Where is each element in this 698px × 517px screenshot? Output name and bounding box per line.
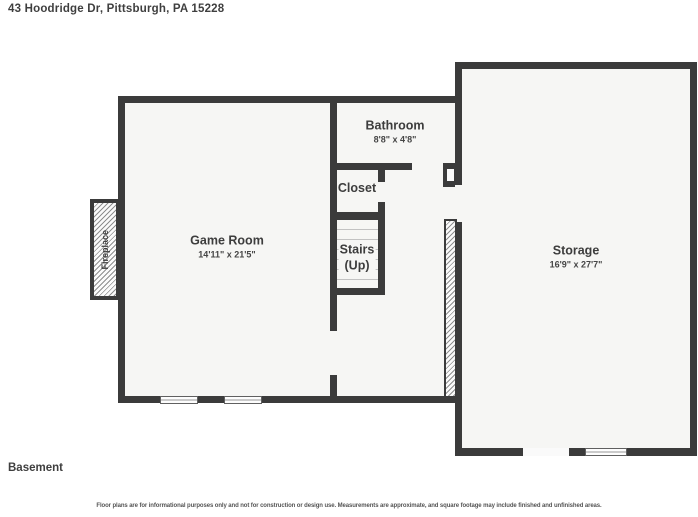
closet-name: Closet xyxy=(338,181,376,197)
hatched-wall-section xyxy=(444,219,457,398)
floor-plan: Fireplace Game Room 14'11" x 21'5" Bathr… xyxy=(0,0,698,517)
game-room-window-2 xyxy=(224,396,262,404)
fireplace-label: Fireplace xyxy=(100,230,110,270)
storage-label: Storage 16'9" x 27'7" xyxy=(550,244,603,271)
wall-closet-bottom xyxy=(330,212,385,220)
disclaimer-text: Floor plans are for informational purpos… xyxy=(0,503,698,509)
stairs-label: Stairs (Up) xyxy=(339,242,376,273)
game-room-dimensions: 14'11" x 21'5" xyxy=(198,249,255,260)
storage-window xyxy=(585,448,627,456)
wall-storage-bottom xyxy=(455,448,697,456)
closet-label: Closet xyxy=(338,181,376,197)
wall-bathroom-bottom xyxy=(330,163,412,170)
fireplace: Fireplace xyxy=(90,199,120,300)
wall-storage-left-upper xyxy=(455,62,462,185)
wall-top-left-block xyxy=(118,96,462,103)
stairs-direction: (Up) xyxy=(345,258,370,274)
wall-divider-stub xyxy=(330,375,337,403)
floor-name: Basement xyxy=(8,462,63,474)
storage-entry-opening xyxy=(455,185,462,222)
storage-dimensions: 16'9" x 27'7" xyxy=(550,259,603,270)
wall-storage-top xyxy=(455,62,697,69)
game-room-name: Game Room xyxy=(190,234,264,250)
bathroom-label: Bathroom 8'8" x 4'8" xyxy=(365,119,424,146)
bathroom-dimensions: 8'8" x 4'8" xyxy=(374,134,417,145)
wall-closet-right-upper xyxy=(378,170,385,182)
bathroom-door-jamb-slit xyxy=(447,169,454,181)
floor-plan-page: 43 Hoodridge Dr, Pittsburgh, PA 15228 xyxy=(0,0,698,517)
game-room-window-1 xyxy=(160,396,198,404)
stairs-name: Stairs xyxy=(340,242,375,258)
storage-door-opening xyxy=(523,448,569,456)
storage-name: Storage xyxy=(553,244,600,260)
wall-stairs-bottom xyxy=(330,288,385,295)
wall-storage-right xyxy=(690,62,697,456)
game-room-label: Game Room 14'11" x 21'5" xyxy=(190,234,264,261)
wall-stairs-right xyxy=(378,220,385,295)
bathroom-name: Bathroom xyxy=(365,119,424,135)
game-room-floor xyxy=(125,103,462,396)
